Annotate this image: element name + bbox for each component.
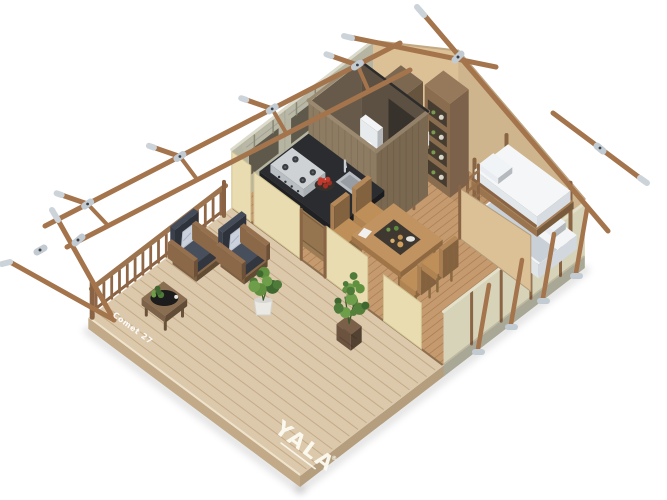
fruit-bowl-part [318,177,323,182]
coffee-table-part [151,290,155,294]
lounge-armchairs-part [242,261,246,280]
pole-frame-part [86,203,89,206]
pole-frame-part [271,108,274,111]
pole-frame-part [179,155,182,158]
gas-stove-part [312,171,314,173]
pole-frame-part [57,193,62,195]
lounge-armchairs-part [266,243,270,262]
food-platter-part [390,239,394,243]
storage-shelves-part [450,89,469,197]
storage-shelves-part [431,130,435,134]
potted-plants-part [350,309,357,316]
potted-plants-part [257,270,264,277]
pole-frame-part [356,64,359,67]
kitchen-sink-part [345,166,347,168]
pole-frame-part [457,56,460,59]
tent-isometric-render: YALA ® Comet 27 [0,0,667,500]
gas-stove-part [278,176,280,178]
dining-set-part [330,204,334,233]
scene [2,7,647,489]
pole-frame-part [52,210,58,220]
food-platter-part [406,236,415,242]
coffee-table-part [174,295,178,299]
gas-stove-part [302,179,304,181]
potted-plants-part [334,303,344,313]
potted-plants-part [350,272,358,280]
potted-plants-part [346,287,355,296]
food-platter-part [397,241,403,247]
potted-plants-part [273,280,282,289]
storage-shelves-part [439,175,444,180]
storage-shelves-part [439,155,444,160]
pole-frame-part [417,7,424,15]
food-platter-part [386,228,390,232]
gas-stove-part [297,190,299,192]
dining-set-part [352,187,356,216]
fruit-bowl-part [325,178,326,179]
pole-frame-part [640,178,647,183]
render-canvas: YALA ® Comet 27 [0,0,667,500]
lounge-armchairs-part [194,259,198,278]
dining-chairs-near-part [417,264,421,295]
potted-plants-part [361,302,369,310]
pole-frame-part [88,204,109,226]
pole-frame-part [241,98,246,100]
food-platter-part [394,226,399,231]
pole-frame-part [2,262,10,264]
potted-plants-part [249,281,261,293]
pole-frame-part [344,36,352,38]
pole-frame-part [599,147,602,150]
gas-stove-part [294,158,296,160]
dining-chairs-near-part [439,248,443,279]
pole-frame-part [39,249,42,252]
pole-frame-part [326,54,331,56]
pole-frame-part [180,157,197,180]
storage-shelves-part [431,170,435,174]
pole-frame-part [149,146,154,148]
potted-plants-part [343,281,349,287]
storage-shelves-part [439,135,444,140]
storage-shelves-part [439,115,444,120]
gas-stove-part [291,185,293,187]
storage-shelves-part [431,150,435,154]
gas-stove-part [284,181,286,183]
pole-frame-part [77,239,80,242]
gas-stove-part [284,166,286,168]
coffee-table-part [156,290,161,295]
food-platter-part [398,235,403,240]
storage-shelves-part [431,110,435,114]
potted-plants-part [353,280,360,287]
